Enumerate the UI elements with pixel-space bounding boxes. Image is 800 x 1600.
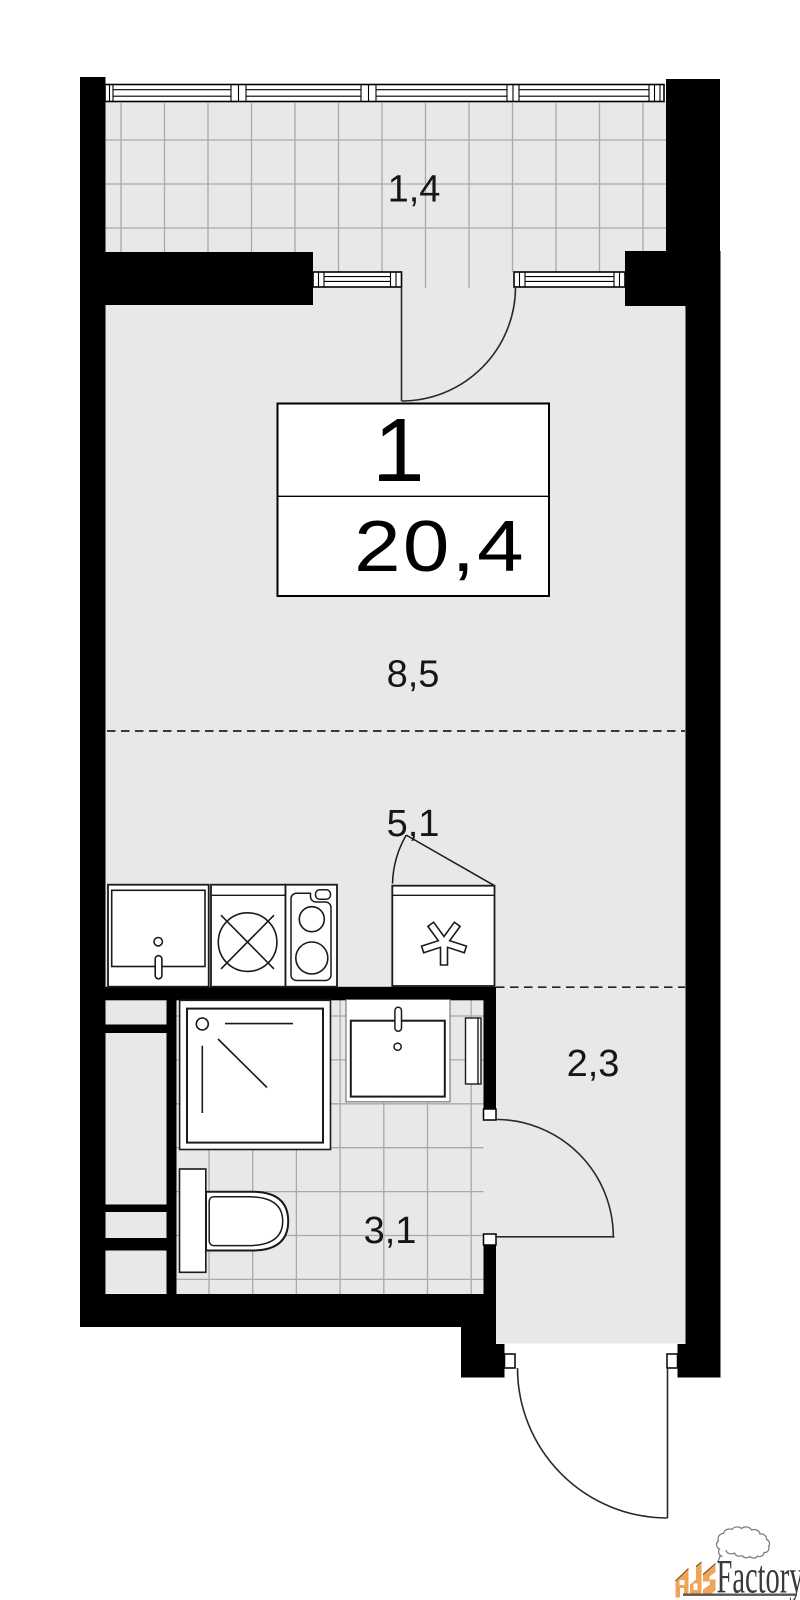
svg-text:3,1: 3,1 [364, 1210, 417, 1252]
svg-text:1,4: 1,4 [388, 169, 441, 211]
svg-text:20,4: 20,4 [354, 505, 526, 586]
svg-text:1: 1 [374, 401, 424, 501]
svg-text:8,5: 8,5 [387, 654, 440, 696]
svg-text:Factory: Factory [717, 1551, 800, 1600]
svg-text:2,3: 2,3 [567, 1043, 620, 1085]
